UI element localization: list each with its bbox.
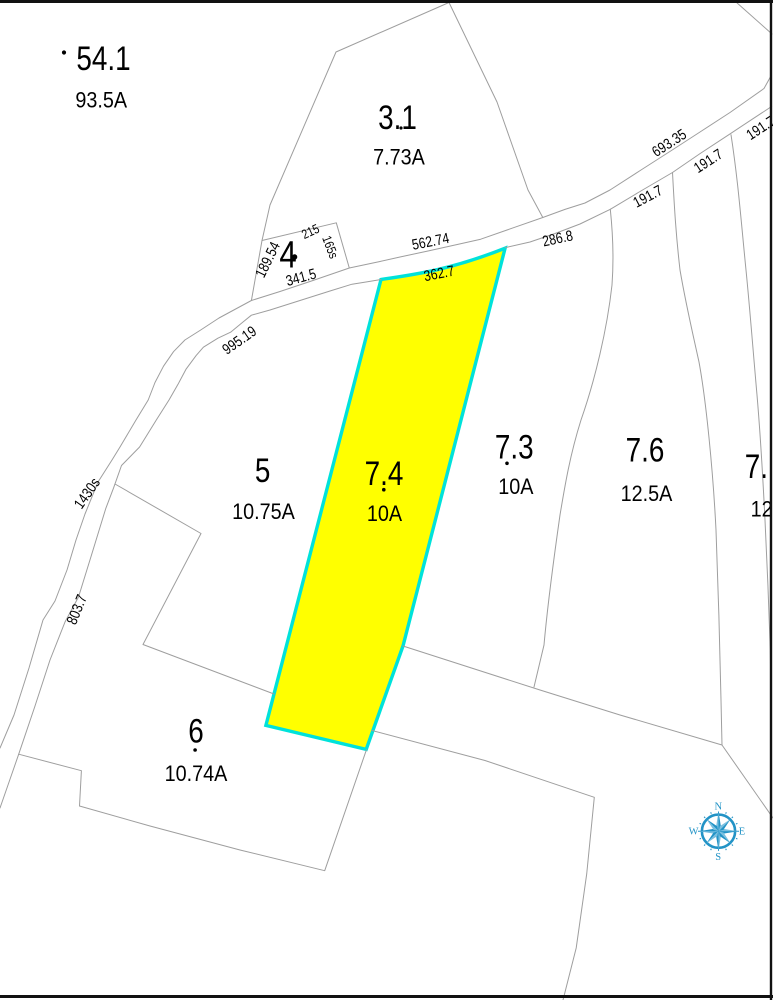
- svg-text:7.4: 7.4: [365, 454, 404, 492]
- svg-text:E: E: [739, 826, 745, 837]
- svg-text:54.1: 54.1: [76, 39, 130, 77]
- svg-text:7.73A: 7.73A: [373, 145, 426, 169]
- svg-text:6: 6: [188, 712, 204, 750]
- svg-text:12.5A: 12.5A: [751, 497, 773, 521]
- svg-text:10A: 10A: [498, 475, 534, 499]
- svg-text:7.: 7.: [745, 447, 768, 485]
- svg-text:5: 5: [255, 451, 271, 489]
- svg-text:N: N: [715, 802, 723, 813]
- svg-text:10.75A: 10.75A: [232, 500, 296, 524]
- svg-text:7.3: 7.3: [495, 428, 534, 466]
- svg-text:3.1: 3.1: [378, 98, 417, 136]
- svg-text:93.5A: 93.5A: [75, 88, 128, 112]
- svg-text:7.6: 7.6: [626, 431, 665, 469]
- svg-text:S: S: [715, 852, 721, 863]
- svg-text:W: W: [689, 826, 699, 837]
- svg-text:10A: 10A: [367, 502, 403, 526]
- svg-text:12.5A: 12.5A: [621, 482, 674, 506]
- svg-text:10.74A: 10.74A: [165, 762, 229, 786]
